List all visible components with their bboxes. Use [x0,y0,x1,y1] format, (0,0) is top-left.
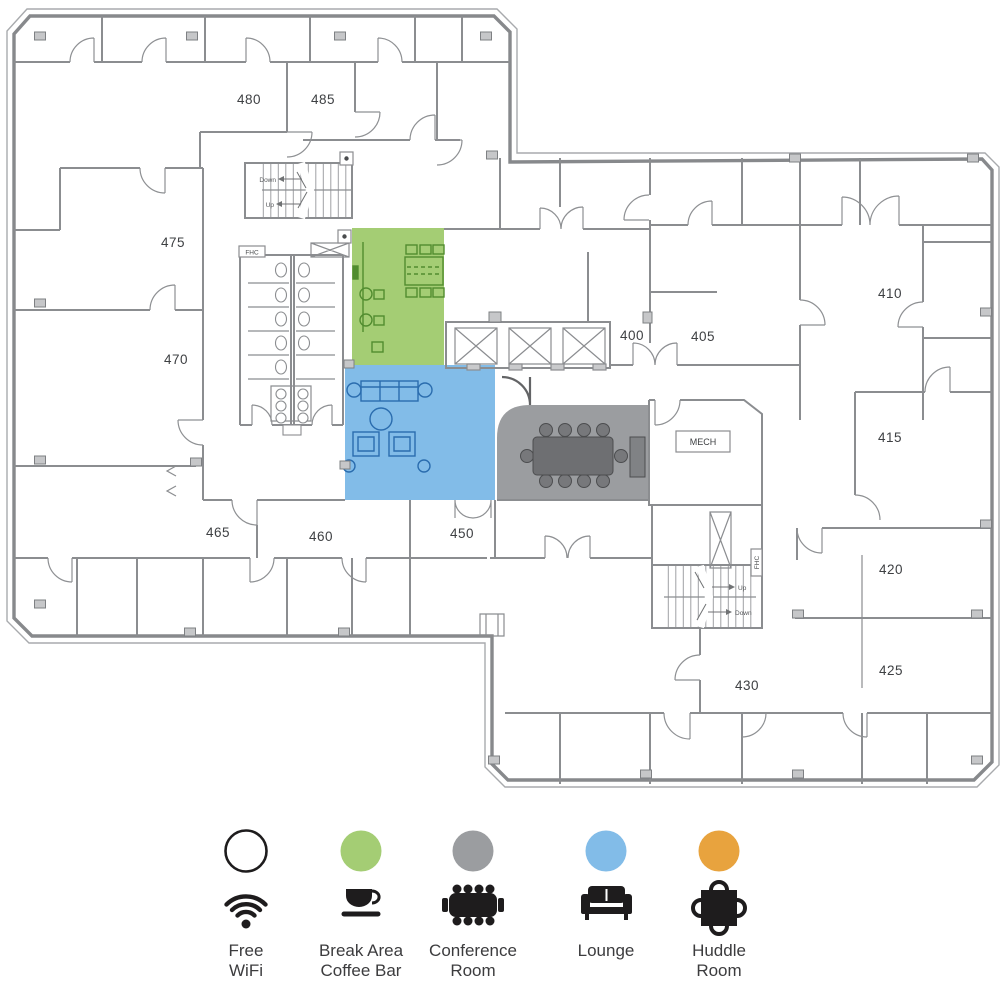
legend-label-line1: Conference [429,941,517,960]
wifi-icon [227,896,266,928]
room-label-410: 410 [878,286,902,301]
stairs-up-label: Up [738,585,747,592]
legend-circle-break-area [341,831,382,872]
room-label-460: 460 [309,529,333,544]
legend-item-free-wifi: Free WiFi [226,831,267,981]
legend-circle-free-wifi [226,831,267,872]
legend-label-line2: Room [450,961,495,980]
door-swings [48,38,950,739]
structural-columns [35,32,992,778]
fhc-label: FHC [245,250,259,257]
interior-walls [14,16,992,784]
room-label-400: 400 [620,328,644,343]
coffee-cup-icon [344,889,379,914]
legend-circle-lounge [586,831,627,872]
exterior-walls [7,9,999,787]
legend-item-conference-room: Conference Room [429,831,517,981]
stairs-down-label: Down [259,177,276,184]
floor-plan: Down Up Up Down [0,0,1000,988]
legend-label-line1: Break Area [319,941,404,960]
room-label-425: 425 [879,663,903,678]
legend-label-line2: Coffee Bar [321,961,402,980]
stairs-up-label: Up [266,202,275,209]
stairs-upper: Down Up [259,163,351,218]
legend: Free WiFi Break Area Coffee Bar Confere [226,831,746,981]
stairs-lower: Up Down [664,566,756,627]
mech-room-label: MECH [690,437,717,447]
conference-table-icon [442,885,504,926]
legend-item-break-area: Break Area Coffee Bar [319,831,404,981]
room-label-475: 475 [161,235,185,250]
legend-item-lounge: Lounge [578,831,635,961]
legend-label-line1: Huddle [692,941,746,960]
room-label-485: 485 [311,92,335,107]
legend-label-line2: WiFi [229,961,263,980]
legend-circle-huddle [699,831,740,872]
room-label-450: 450 [450,526,474,541]
legend-label-line1: Lounge [578,941,635,960]
legend-label-line1: Free [229,941,264,960]
room-label-470: 470 [164,352,188,367]
legend-circle-conference [453,831,494,872]
sofa-icon [581,886,632,920]
legend-item-huddle-room: Huddle Room [692,831,746,981]
room-label-405: 405 [691,329,715,344]
stairs-down-label: Down [735,610,752,617]
legend-label-line2: Room [696,961,741,980]
huddle-table-icon [693,882,745,934]
floor-plan-page: Down Up Up Down [0,0,1000,988]
room-label-415: 415 [878,430,902,445]
room-label-430: 430 [735,678,759,693]
room-label-480: 480 [237,92,261,107]
room-label-420: 420 [879,562,903,577]
restroom-fixtures [276,263,310,435]
fhc-label: FHC [754,556,761,570]
room-label-465: 465 [206,525,230,540]
